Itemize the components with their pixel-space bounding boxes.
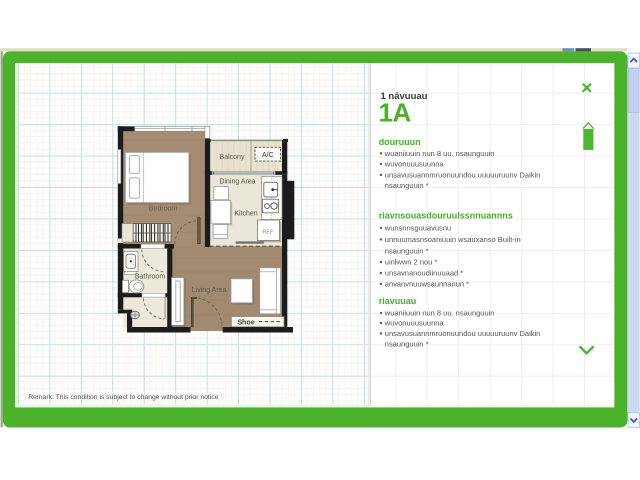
svg-text:Bedroom: Bedroom [149, 206, 178, 213]
svg-text:unnuumasnsoaniuuin wsauxanso B: unnuumasnsoaniuuin wsauxanso Built-in [385, 235, 521, 244]
svg-text:riavnsouasdouruulssnnuannns: riavnsouasdouruulssnnuannns [379, 210, 513, 220]
svg-text:riavuuau: riavuuau [379, 296, 417, 306]
svg-text:A/C: A/C [262, 152, 274, 159]
svg-text:1A: 1A [379, 98, 412, 128]
svg-text:nsaunguuin *: nsaunguuin * [385, 247, 429, 256]
svg-text:nsaunguuin *: nsaunguuin * [385, 340, 429, 349]
svg-text:wunsnnsguuavusnu: wunsnnsguuavusnu [384, 224, 451, 233]
svg-text:wuvonuuusuunna: wuvonuuusuunna [384, 319, 445, 328]
svg-text:Living Area: Living Area [192, 287, 227, 294]
svg-text:uinlwwn 2 nou *: uinlwwn 2 nou * [385, 258, 438, 267]
svg-text:anvanvnuuwsaunnanun *: anvanvnuuwsaunnanun * [385, 280, 469, 289]
svg-text:wuvonuuusuunna: wuvonuuusuunna [384, 160, 445, 169]
svg-text:REF.: REF. [262, 229, 274, 235]
svg-text:unsavnanoudiinuuaad *: unsavnanoudiinuuaad * [385, 269, 463, 278]
svg-text:Kitchen: Kitchen [234, 210, 257, 217]
svg-text:unsavusuannmruonuundou uuuuuru: unsavusuannmruonuundou uuuuuruunv Daikin [385, 329, 541, 338]
svg-text:wuaniiuuin nun 8 uu. nsaunguui: wuaniiuuin nun 8 uu. nsaunguuin [384, 149, 495, 158]
svg-text:wuaniiuuin nun 8 uu. nsaunguui: wuaniiuuin nun 8 uu. nsaunguuin [384, 309, 495, 318]
svg-text:nsaunguuin *: nsaunguuin * [385, 181, 429, 190]
svg-text:Remark: This condition is subj: Remark: This condition is subject to cha… [28, 394, 219, 401]
svg-text:Dining Area: Dining Area [219, 178, 255, 185]
svg-text:Balcony: Balcony [220, 154, 245, 161]
svg-text:Bathroom: Bathroom [135, 274, 166, 281]
svg-text:douruuun: douruuun [379, 137, 421, 147]
svg-text:unsavusuannmruonuundou uuuuuru: unsavusuannmruonuundou uuuuuruunv Daikin [385, 171, 541, 180]
svg-text:Shoe: Shoe [237, 319, 254, 327]
